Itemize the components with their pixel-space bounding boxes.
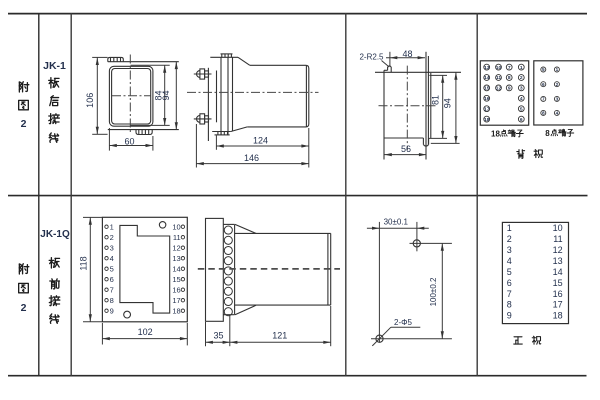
svg-text:30±0.1: 30±0.1 — [384, 218, 409, 227]
svg-text:14: 14 — [172, 264, 180, 273]
svg-text:10: 10 — [496, 65, 502, 71]
svg-text:9: 9 — [110, 306, 114, 315]
svg-text:15: 15 — [553, 278, 563, 288]
svg-text:4: 4 — [507, 256, 512, 266]
svg-text:3: 3 — [110, 243, 114, 252]
svg-text:94: 94 — [161, 90, 171, 100]
svg-text:8: 8 — [110, 296, 114, 305]
svg-text:35: 35 — [213, 331, 223, 341]
svg-text:94: 94 — [442, 98, 452, 108]
svg-text:5: 5 — [542, 67, 545, 72]
svg-text:2: 2 — [556, 82, 559, 87]
svg-text:10: 10 — [553, 223, 563, 233]
svg-text:14: 14 — [484, 75, 490, 81]
svg-text:12: 12 — [172, 243, 180, 252]
svg-text:5: 5 — [520, 106, 523, 112]
svg-text:102: 102 — [138, 327, 153, 337]
svg-text:16: 16 — [484, 96, 490, 102]
svg-text:146: 146 — [244, 153, 259, 163]
svg-text:106: 106 — [85, 93, 95, 108]
svg-text:18: 18 — [553, 311, 563, 321]
svg-text:3: 3 — [556, 97, 559, 102]
svg-text:16: 16 — [172, 285, 180, 294]
svg-text:17: 17 — [553, 300, 563, 310]
svg-text:6: 6 — [110, 275, 114, 284]
svg-text:5: 5 — [110, 264, 114, 273]
svg-text:18: 18 — [172, 306, 180, 315]
svg-text:11: 11 — [553, 234, 562, 244]
svg-text:12: 12 — [553, 245, 563, 255]
svg-text:7: 7 — [110, 285, 114, 294]
svg-text:2: 2 — [21, 302, 27, 314]
svg-text:8: 8 — [542, 111, 545, 116]
svg-text:3: 3 — [507, 245, 512, 255]
svg-text:7: 7 — [507, 289, 512, 299]
svg-text:4: 4 — [520, 96, 523, 102]
svg-text:118: 118 — [79, 256, 89, 270]
svg-text:14: 14 — [553, 267, 563, 277]
svg-text:12: 12 — [496, 86, 502, 92]
svg-text:3: 3 — [520, 86, 523, 92]
svg-text:48: 48 — [402, 49, 412, 59]
svg-text:8: 8 — [507, 300, 512, 310]
svg-text:17: 17 — [484, 106, 490, 112]
svg-text:17: 17 — [172, 296, 180, 305]
svg-text:JK-1Q: JK-1Q — [40, 229, 70, 240]
svg-text:1: 1 — [110, 222, 114, 231]
svg-text:15: 15 — [172, 275, 180, 284]
svg-text:56: 56 — [401, 144, 411, 154]
svg-text:13: 13 — [172, 254, 180, 263]
svg-text:2: 2 — [507, 234, 512, 244]
svg-text:60: 60 — [124, 136, 134, 146]
svg-text:9: 9 — [507, 311, 512, 321]
svg-text:11: 11 — [496, 75, 501, 81]
svg-text:10: 10 — [172, 222, 180, 231]
svg-text:13: 13 — [484, 65, 490, 71]
svg-text:81: 81 — [431, 95, 441, 105]
svg-text:18: 18 — [484, 117, 490, 123]
svg-text:4: 4 — [110, 254, 114, 263]
svg-text:7: 7 — [508, 65, 511, 71]
svg-text:4: 4 — [556, 111, 559, 116]
svg-text:JK-1: JK-1 — [43, 60, 66, 72]
svg-text:2: 2 — [520, 75, 523, 81]
svg-text:16: 16 — [553, 289, 563, 299]
svg-text:11: 11 — [173, 233, 181, 242]
svg-text:121: 121 — [272, 331, 287, 341]
svg-text:6: 6 — [507, 278, 512, 288]
svg-text:1: 1 — [507, 223, 512, 233]
svg-text:13: 13 — [553, 256, 563, 266]
svg-text:100±0.2: 100±0.2 — [429, 277, 438, 306]
svg-text:8: 8 — [508, 75, 511, 81]
svg-text:1: 1 — [556, 67, 559, 72]
svg-text:8: 8 — [545, 129, 550, 138]
svg-text:2: 2 — [21, 118, 27, 130]
svg-text:18: 18 — [491, 129, 500, 138]
svg-text:6: 6 — [542, 82, 545, 87]
svg-text:7: 7 — [542, 97, 545, 102]
svg-text:9: 9 — [508, 86, 511, 92]
svg-text:2-Φ5: 2-Φ5 — [394, 318, 412, 327]
svg-text:6: 6 — [520, 117, 523, 123]
svg-text:15: 15 — [484, 86, 490, 92]
svg-text:5: 5 — [507, 267, 512, 277]
svg-text:2-R2.5: 2-R2.5 — [359, 52, 384, 61]
svg-text:1: 1 — [520, 65, 523, 71]
svg-text:2: 2 — [110, 233, 114, 242]
svg-text:124: 124 — [253, 136, 268, 146]
